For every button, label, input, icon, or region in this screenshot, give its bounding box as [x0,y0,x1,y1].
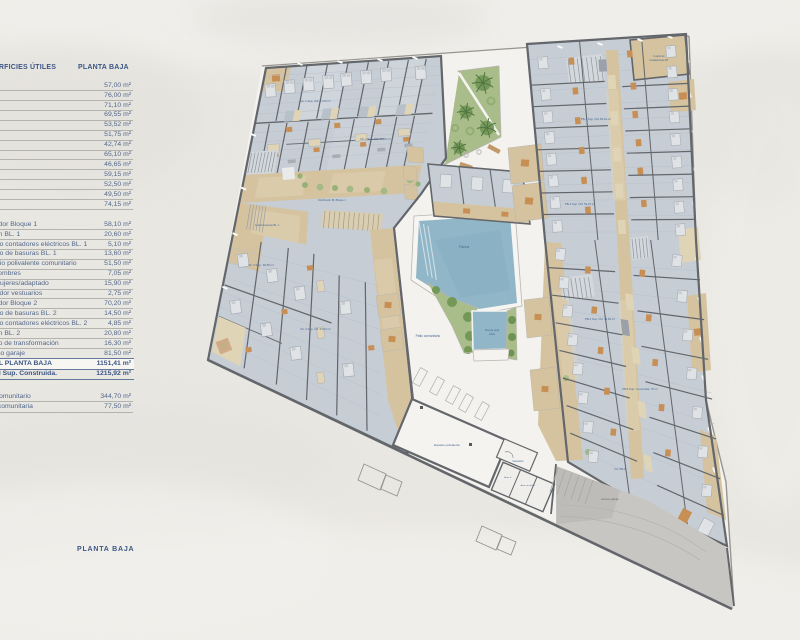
svg-text:Vestuarios: Vestuarios [512,460,524,463]
svg-text:Aseo h.: Aseo h. [504,476,512,479]
svg-text:PB-4 Sup. Útil: 49,50 m²: PB-4 Sup. Útil: 49,50 m² [585,316,615,321]
svg-text:Cuarto basuras BL. 1: Cuarto basuras BL. 1 [255,223,280,227]
svg-text:Piscina: Piscina [459,245,470,249]
svg-text:Viv. 4 Sup. Útil: 53,52 m²: Viv. 4 Sup. Útil: 53,52 m² [300,326,331,331]
svg-text:Viv. 3 Sup.: 69,55 m²: Viv. 3 Sup.: 69,55 m² [248,263,274,267]
svg-text:PB-1 Sup. Útil: 65,10 m²: PB-1 Sup. Útil: 65,10 m² [581,116,611,121]
svg-text:Piscina para: Piscina para [485,328,500,332]
svg-text:Cuarto de: Cuarto de [653,54,665,58]
svg-text:niños: niños [489,332,496,336]
svg-text:Aseo m./adapt.: Aseo m./adapt. [521,484,536,487]
svg-text:Distribuidor Bl. Bloque 1: Distribuidor Bl. Bloque 1 [318,198,346,202]
svg-text:Patio comunitario: Patio comunitario [416,334,441,338]
svg-text:Viv. 1 Sup. Útil: 57,00 m²: Viv. 1 Sup. Útil: 57,00 m² [300,98,331,103]
svg-text:instalaciones BT: instalaciones BT [649,58,668,62]
svg-text:PB-5 Sup. Construida: 75 m²: PB-5 Sup. Construida: 75 m² [622,387,658,391]
svg-text:Espacio polivalente: Espacio polivalente [434,443,460,447]
svg-text:Acceso garaje: Acceso garaje [601,497,619,501]
svg-text:Viv. PB-6: Viv. PB-6 [614,467,626,471]
svg-text:PB-2 Sup. Útil: 59,15 m²: PB-2 Sup. Útil: 59,15 m² [565,201,595,206]
svg-text:Viv. 2 Sup. Útil: 76,00 m²: Viv. 2 Sup. Útil: 76,00 m² [360,136,391,141]
